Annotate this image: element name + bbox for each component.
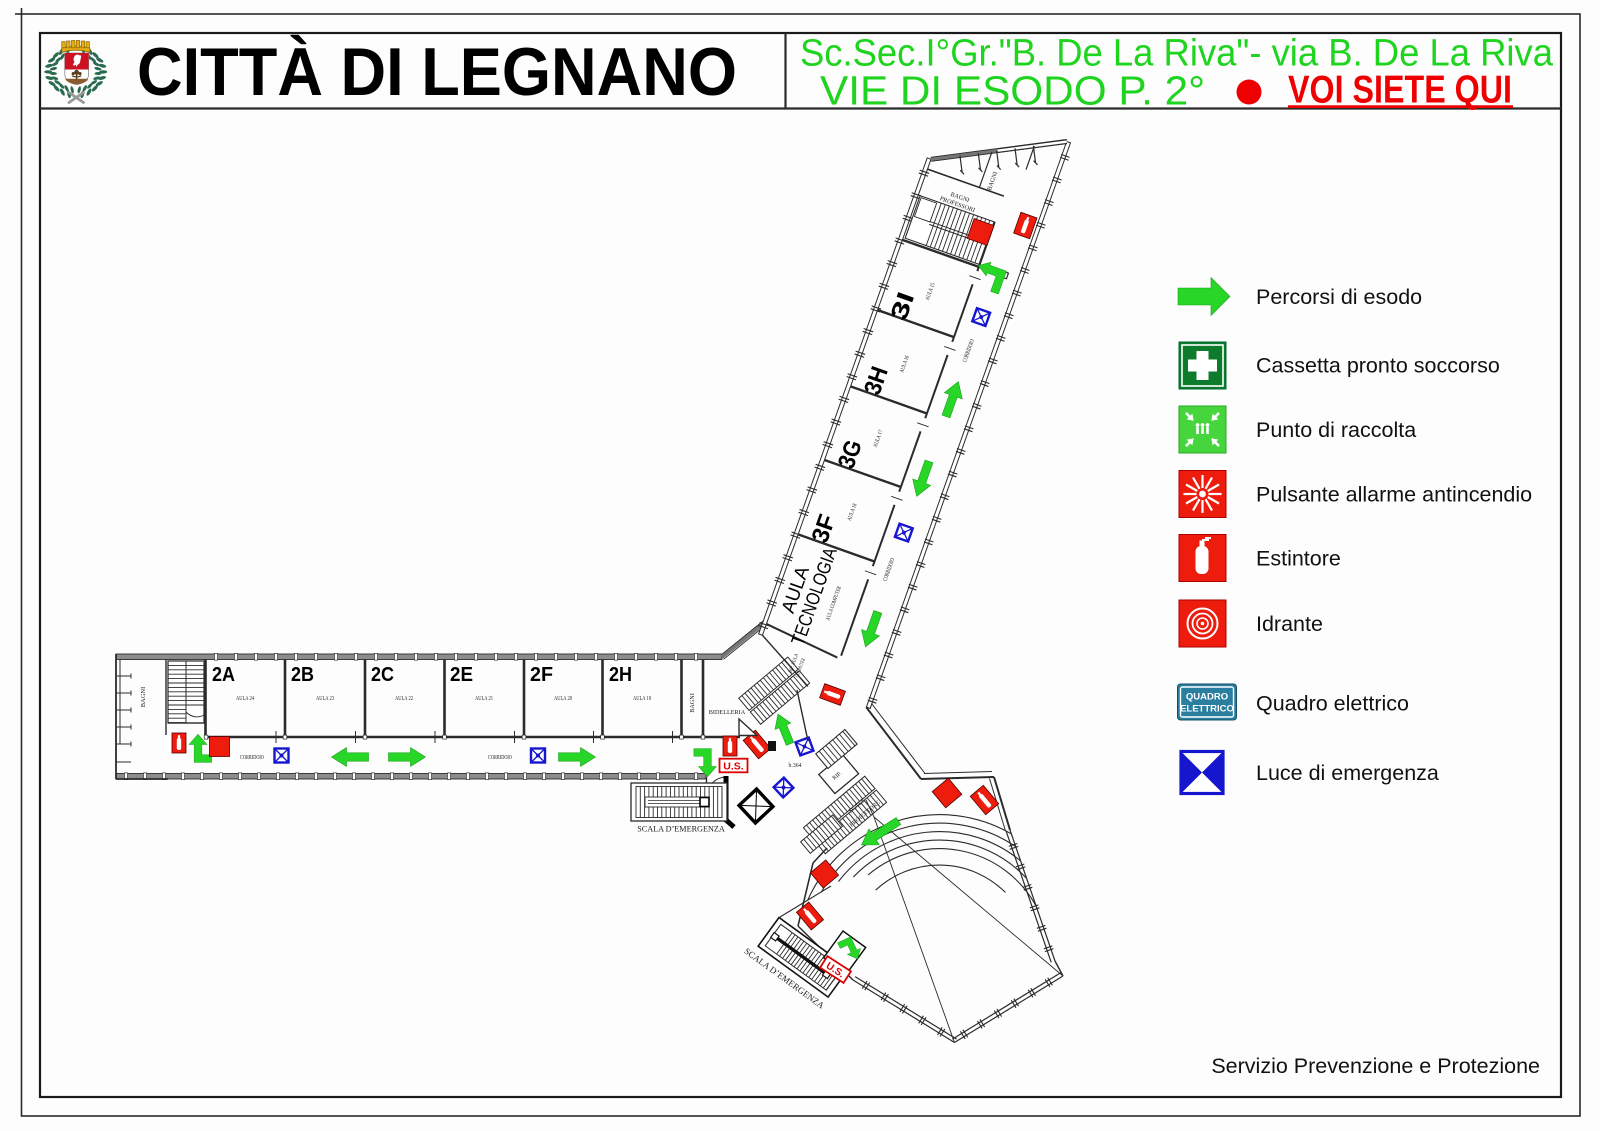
svg-text:Idrante: Idrante [1256, 612, 1323, 636]
svg-text:BAGNI: BAGNI [689, 693, 696, 713]
svg-text:VIE DI ESODO P. 2°: VIE DI ESODO P. 2° [820, 68, 1205, 114]
svg-text:2A: 2A [212, 664, 235, 686]
svg-text:CITTÀ DI LEGNANO: CITTÀ DI LEGNANO [137, 34, 737, 110]
svg-text:Pulsante allarme antincendio: Pulsante allarme antincendio [1256, 483, 1532, 507]
svg-text:AULA 23: AULA 23 [316, 696, 334, 702]
svg-text:AULA 22: AULA 22 [395, 696, 413, 702]
svg-text:b.364: b.364 [788, 763, 801, 769]
svg-text:Servizio Prevenzione e Protezi: Servizio Prevenzione e Protezione [1211, 1054, 1540, 1078]
svg-text:Punto di raccolta: Punto di raccolta [1256, 418, 1416, 442]
svg-text:2B: 2B [291, 664, 314, 686]
svg-text:Luce di emergenza: Luce di emergenza [1256, 761, 1439, 785]
svg-text:2F: 2F [530, 664, 553, 686]
svg-text:BAGNI: BAGNI [140, 687, 147, 708]
svg-text:U.S.: U.S. [723, 760, 744, 772]
svg-text:ELETTRICO: ELETTRICO [1180, 704, 1234, 715]
svg-text:Percorsi di esodo: Percorsi di esodo [1256, 285, 1422, 309]
svg-text:AULA 21: AULA 21 [475, 696, 493, 702]
svg-text:2H: 2H [609, 664, 632, 686]
svg-text:Cassetta pronto soccorso: Cassetta pronto soccorso [1256, 354, 1500, 378]
svg-text:AULA 24: AULA 24 [236, 696, 254, 702]
svg-text:QUADRO: QUADRO [1186, 692, 1228, 703]
svg-text:Quadro elettrico: Quadro elettrico [1256, 692, 1409, 716]
svg-text:BIDELLERIA: BIDELLERIA [709, 709, 746, 716]
svg-text:CORRIDOIO: CORRIDOIO [488, 754, 512, 761]
svg-text:CORRIDOIO: CORRIDOIO [240, 754, 264, 761]
svg-text:2E: 2E [450, 664, 473, 686]
svg-text:AULA 20: AULA 20 [554, 696, 572, 702]
svg-text:2C: 2C [371, 664, 394, 686]
svg-text:VOI SIETE QUI: VOI SIETE QUI [1288, 69, 1512, 112]
svg-text:SCALA D’EMERGENZA: SCALA D’EMERGENZA [637, 825, 725, 834]
svg-text:AULA 19: AULA 19 [633, 696, 651, 702]
svg-text:Estintore: Estintore [1256, 547, 1341, 571]
